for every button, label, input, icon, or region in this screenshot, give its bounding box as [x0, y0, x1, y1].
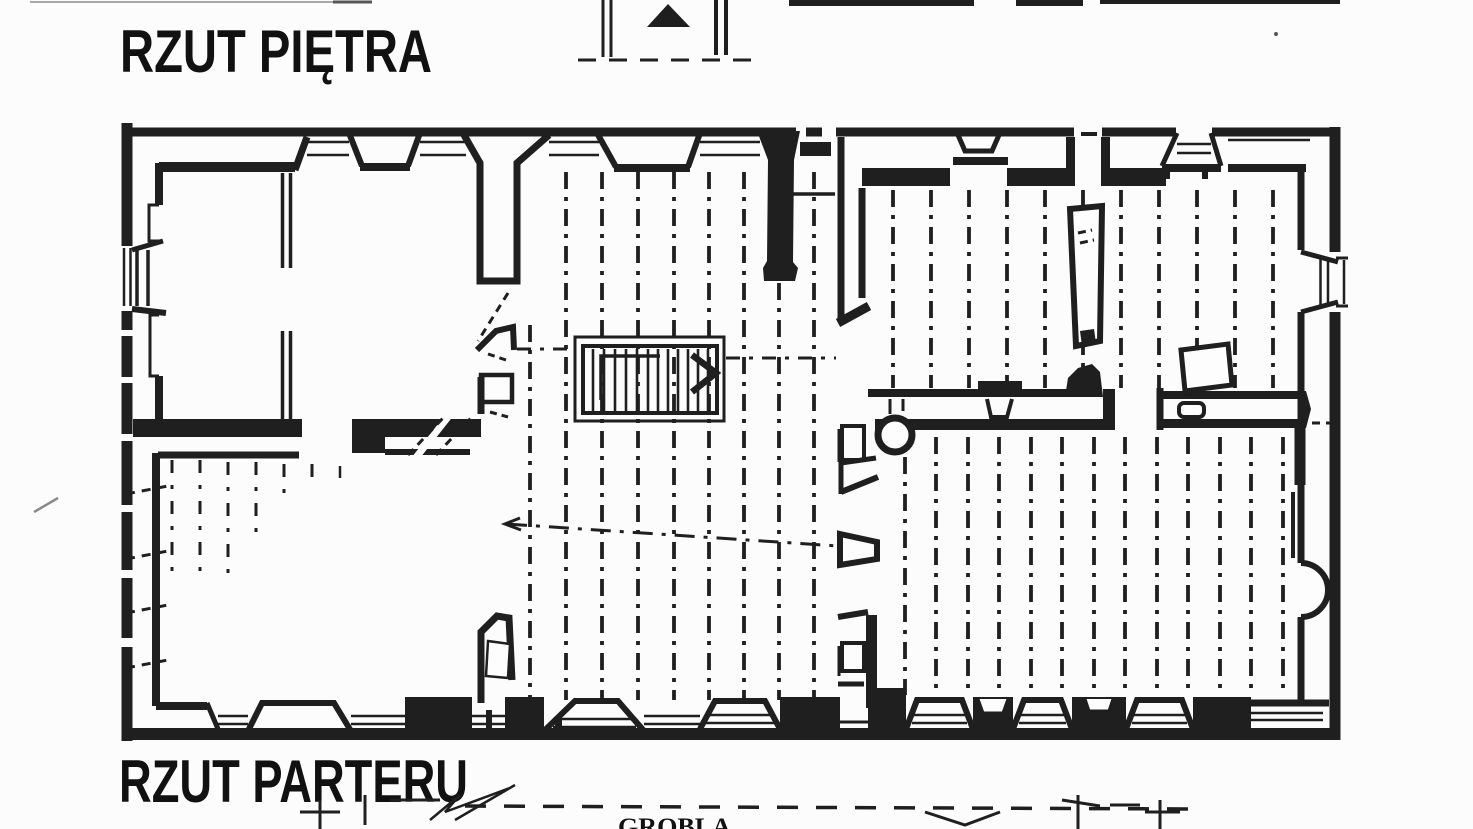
svg-text:RZUT PARTERU: RZUT PARTERU: [119, 748, 468, 815]
svg-text:RZUT PIĘTRA: RZUT PIĘTRA: [120, 18, 432, 85]
svg-text:GROBLA: GROBLA: [618, 814, 731, 829]
